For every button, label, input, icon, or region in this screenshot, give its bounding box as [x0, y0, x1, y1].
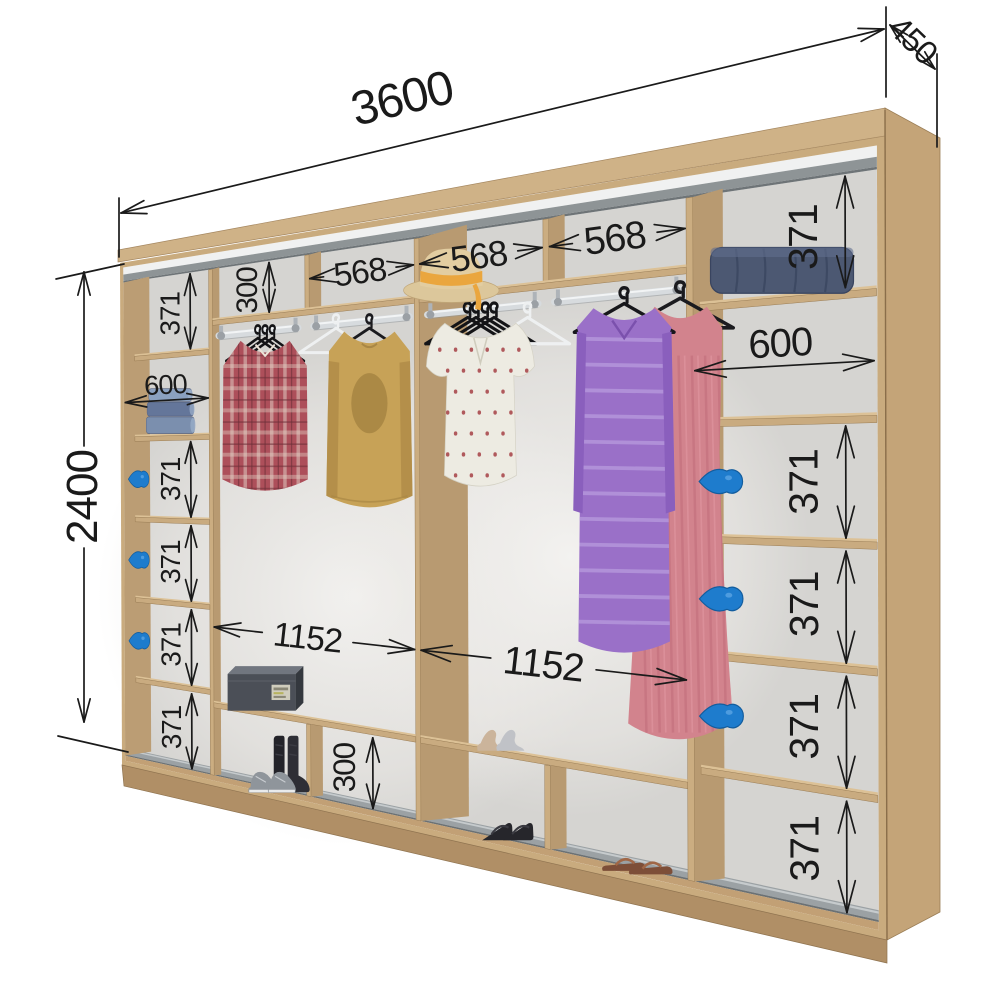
overall-height-label: 2400	[58, 450, 107, 544]
dim-left-col-cell-6: 371	[156, 705, 187, 749]
dim-mid-left-top-height: 300	[231, 267, 264, 314]
dim-arrowhead	[121, 201, 144, 213]
dim-mid-left-top-width: 568	[332, 251, 389, 295]
dim-line	[58, 736, 128, 752]
product-image: 3716003713713713713005681152300568568115…	[0, 0, 1000, 1000]
dim-left-col-width: 600	[143, 368, 188, 401]
dim-left-col-cell-1: 371	[154, 292, 185, 336]
overall-depth-label: 450	[882, 8, 946, 71]
dim-mid-right-top-width-1: 568	[448, 233, 510, 280]
right-side-panel	[885, 108, 940, 940]
divider-front	[543, 219, 549, 284]
generated-diagram: 3716003713713713713005681152300568568115…	[56, 7, 940, 963]
dim-right-col-cell-6: 371	[781, 816, 827, 882]
dim-line	[56, 264, 124, 279]
dim-left-col-cell-5: 371	[156, 623, 187, 667]
dim-mid-right-width: 1152	[501, 638, 586, 691]
dim-left-col-cell-3: 371	[155, 457, 186, 501]
divider-side	[311, 721, 323, 796]
dim-right-col-cell-3: 371	[781, 449, 827, 515]
dim-arrowhead	[861, 29, 884, 41]
divider-side	[550, 761, 566, 849]
dim-mid-left-bottom-height: 300	[327, 742, 362, 792]
dim-arrowhead	[858, 28, 884, 29]
overall-width-label: 3600	[346, 61, 458, 137]
divider-front	[305, 255, 309, 310]
dim-arrowhead	[84, 699, 90, 722]
dim-mid-right-top-width-2: 568	[581, 213, 648, 264]
dim-left-col-cell-4: 371	[155, 540, 186, 584]
dim-right-col-cell-4: 371	[781, 572, 827, 638]
dim-right-col-width: 600	[747, 320, 813, 367]
dim-arrowhead	[121, 213, 147, 214]
dim-arrowhead	[78, 272, 84, 295]
dim-right-col-cell-5: 371	[781, 694, 827, 760]
wardrobe-dimension-diagram: 3716003713713713713005681152300568568115…	[0, 0, 1000, 1000]
dim-right-col-cell-1: 371	[780, 204, 826, 270]
shoe-box	[228, 666, 304, 711]
dim-mid-left-width: 1152	[271, 615, 344, 660]
dim-arrowhead	[84, 272, 90, 295]
divider-front	[545, 765, 551, 850]
dim-arrowhead	[78, 699, 84, 722]
purple-striped-dress	[573, 288, 675, 653]
